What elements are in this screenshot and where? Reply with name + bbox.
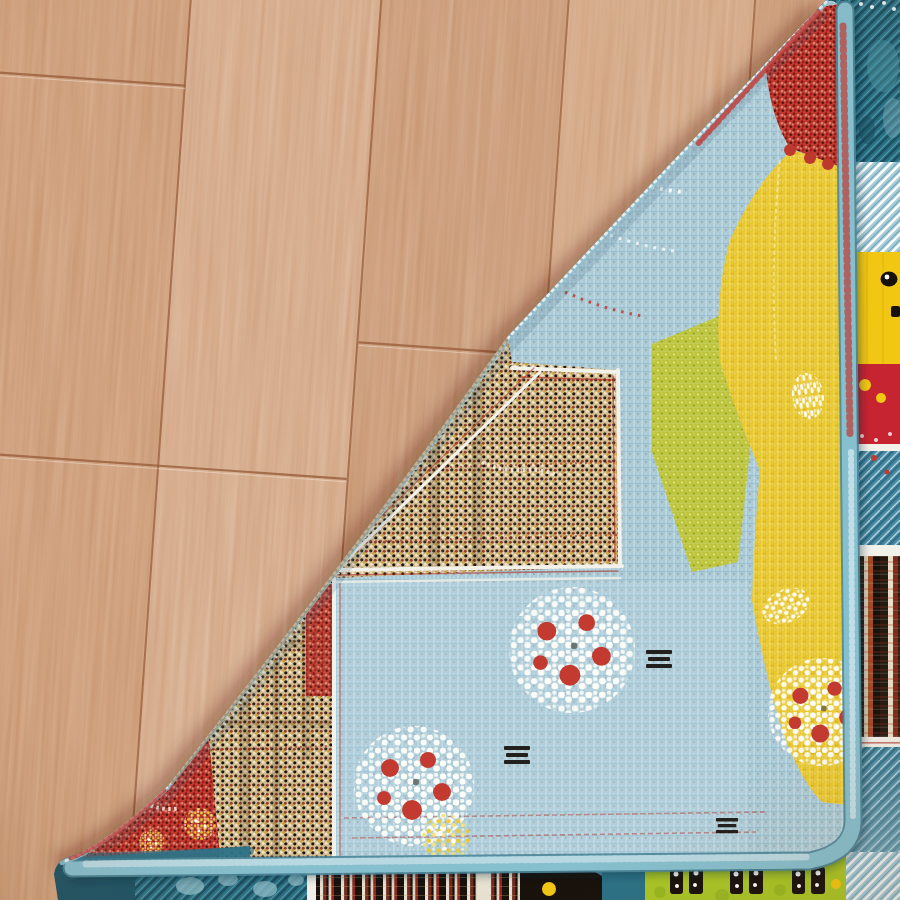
photo-canvas: Close-up photo of the corner of a colorf… <box>0 0 900 900</box>
vignette <box>0 0 900 900</box>
rug-photo: Close-up photo of the corner of a colorf… <box>0 0 900 900</box>
